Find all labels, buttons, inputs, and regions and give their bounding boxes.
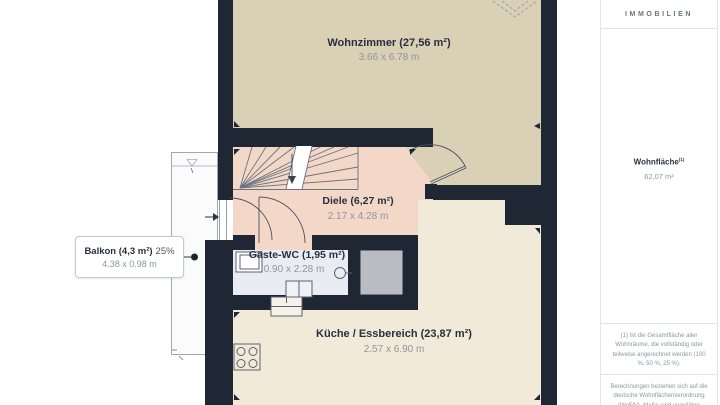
diele-label: Diele (6,27 m²) xyxy=(322,195,393,207)
wohnzimmer-label: Wohnzimmer (27,56 m²) xyxy=(327,37,450,49)
footnote-1: (1) Ist die Gesamtfläche aller Wohnräume… xyxy=(601,323,717,374)
gaeste-wc-dims: 0.90 x 2.28 m xyxy=(264,264,325,275)
kitchen-sink-icon xyxy=(271,297,302,316)
shaft-area xyxy=(360,250,403,295)
kueche-dims: 2.57 x 6.90 m xyxy=(364,344,425,355)
balkon-dims: 4.38 x 0.98 m xyxy=(102,259,157,269)
living-area-value: 62,07 m² xyxy=(644,172,674,181)
stove-icon xyxy=(234,344,260,370)
diele-dims: 2.17 x 4.28 m xyxy=(328,211,389,222)
brand-logo: IMMOBILIEN xyxy=(601,0,717,29)
balkon-percent: 25% xyxy=(156,246,175,257)
radiator-icon xyxy=(286,281,312,297)
living-area-block: Wohnfläche(1) 62,07 m² xyxy=(601,29,717,323)
gaeste-wc-label: Gäste-WC (1,95 m²) xyxy=(249,249,345,261)
balkon-label: Balkon (4,3 m²) xyxy=(84,246,152,257)
living-area-label-text: Wohnfläche xyxy=(634,157,679,166)
living-area-label: Wohnfläche(1) xyxy=(634,157,685,167)
living-area-footnote-ref: (1) xyxy=(679,157,685,162)
balkon-callout: Balkon (4,3 m²)25% 4.38 x 0.98 m xyxy=(75,236,184,278)
wohnzimmer-dims: 3.66 x 6.78 m xyxy=(359,52,420,63)
kueche-label: Küche / Essbereich (23,87 m²) xyxy=(316,328,472,340)
footnote-2: Berechnungen beziehen sich auf die deuts… xyxy=(601,374,717,405)
info-sidebar: IMMOBILIEN Wohnfläche(1) 62,07 m² (1) Is… xyxy=(600,0,718,405)
floorplan-page: Wohnzimmer (27,56 m²) 3.66 x 6.78 m Diel… xyxy=(0,0,720,405)
